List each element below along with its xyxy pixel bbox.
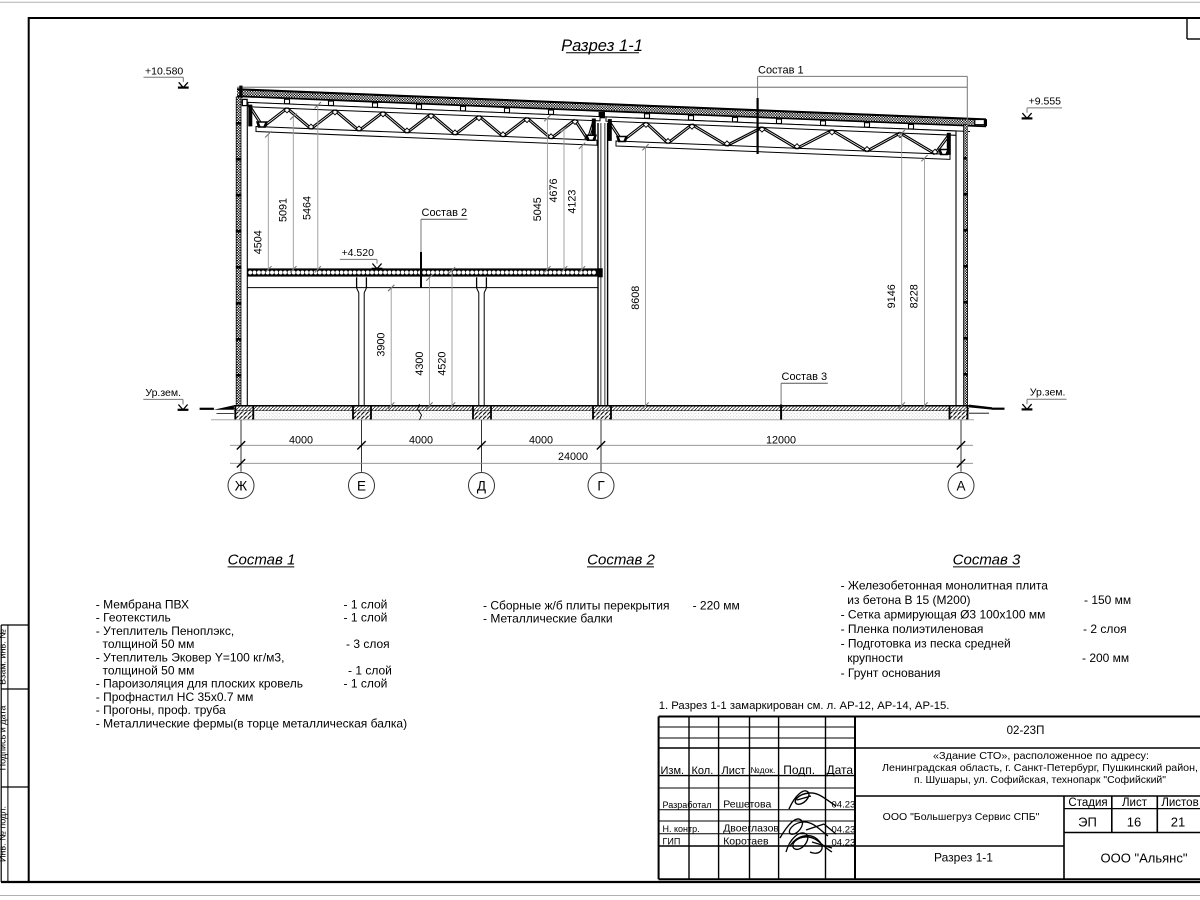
svg-text:- Пароизоляция для плоских кро: - Пароизоляция для плоских кровель: [96, 677, 303, 691]
svg-text:Инв. № подл.: Инв. № подл.: [0, 806, 7, 862]
svg-text:4300: 4300: [414, 352, 426, 376]
svg-text:ГИП: ГИП: [663, 837, 681, 847]
svg-text:+10.580: +10.580: [145, 66, 183, 78]
svg-text:- 220 мм: - 220 мм: [693, 599, 740, 613]
svg-text:- Утеплитель Эковер Y=100 кг/м: - Утеплитель Эковер Y=100 кг/м3,: [96, 650, 285, 664]
svg-text:п. Шушары, ул. Софийская, техн: п. Шушары, ул. Софийская, технопарк "Соф…: [914, 774, 1166, 786]
svg-text:Ур.зем.: Ур.зем.: [1030, 387, 1066, 399]
svg-text:Изм.: Изм.: [661, 765, 685, 777]
svg-text:«Здание СТО», расположенное по: «Здание СТО», расположенное по адресу:: [933, 750, 1149, 762]
svg-text:4000: 4000: [289, 435, 313, 447]
svg-text:12000: 12000: [766, 435, 796, 447]
svg-text:Ур.зем.: Ур.зем.: [145, 387, 181, 399]
svg-text:Д: Д: [477, 478, 486, 493]
svg-text:1. Разрез 1-1 замаркирован см.: 1. Разрез 1-1 замаркирован см. л. АР-12,…: [659, 700, 950, 712]
svg-text:- 3 слоя: - 3 слоя: [346, 637, 390, 651]
svg-text:- Пленка полиэтиленовая: - Пленка полиэтиленовая: [841, 622, 984, 636]
svg-text:ООО "Альянс": ООО "Альянс": [1101, 851, 1188, 866]
svg-text:№док.: №док.: [751, 765, 776, 775]
svg-text:5464: 5464: [301, 196, 313, 220]
svg-text:Двоеглазов: Двоеглазов: [723, 823, 779, 835]
svg-text:4504: 4504: [253, 230, 265, 254]
svg-text:4123: 4123: [566, 190, 578, 214]
svg-text:- Утеплитель Пеноплэкс,: - Утеплитель Пеноплэкс,: [96, 624, 234, 638]
svg-text:- Подготовка из песка средней: - Подготовка из песка средней: [841, 637, 1011, 651]
svg-text:Дата: Дата: [827, 763, 854, 777]
svg-text:- Металлические балки: - Металлические балки: [483, 612, 613, 626]
svg-text:16: 16: [1127, 815, 1141, 830]
svg-text:Кол.: Кол.: [692, 765, 714, 777]
svg-text:Состав 3: Состав 3: [782, 371, 828, 383]
svg-text:Состав 1: Состав 1: [228, 551, 296, 568]
svg-text:Коротаев: Коротаев: [723, 835, 769, 847]
svg-text:ЭП: ЭП: [1078, 815, 1097, 830]
svg-text:Листов: Листов: [1161, 797, 1198, 809]
svg-text:Ленинградская область, г. Санк: Ленинградская область, г. Санкт-Петербур…: [882, 762, 1198, 774]
svg-text:Решетова: Решетова: [723, 799, 771, 811]
svg-text:Подпись и дата: Подпись и дата: [0, 706, 7, 771]
svg-text:Е: Е: [357, 478, 366, 493]
svg-text:4000: 4000: [529, 435, 553, 447]
svg-text:Лист: Лист: [722, 765, 746, 777]
svg-text:Состав 3: Состав 3: [953, 551, 1021, 568]
svg-text:крупности: крупности: [841, 651, 903, 665]
svg-text:24000: 24000: [558, 451, 588, 463]
svg-text:- Прогоны, проф. труба: - Прогоны, проф. труба: [96, 703, 226, 717]
svg-text:4000: 4000: [409, 435, 433, 447]
svg-text:- Железобетонная монолитная п: - Железобетонная монолитная плита: [841, 579, 1049, 593]
svg-text:9146: 9146: [886, 284, 898, 308]
svg-text:21: 21: [1171, 815, 1185, 830]
svg-text:ООО "Большегруз Сервис СПБ": ООО "Большегруз Сервис СПБ": [883, 811, 1040, 823]
svg-text:4520: 4520: [436, 352, 448, 376]
svg-text:Состав 2: Состав 2: [587, 551, 655, 568]
svg-text:Г: Г: [597, 478, 605, 493]
svg-text:- 1 слой: - 1 слой: [348, 664, 392, 678]
svg-text:Н. контр.: Н. контр.: [663, 824, 700, 834]
svg-text:- 150 мм: - 150 мм: [1084, 593, 1131, 607]
svg-text:Стадия: Стадия: [1068, 797, 1107, 809]
svg-text:- 1 слой: - 1 слой: [344, 677, 388, 691]
svg-text:04.23: 04.23: [832, 837, 856, 848]
svg-text:Состав 1: Состав 1: [758, 65, 804, 77]
svg-text:Состав 2: Состав 2: [422, 207, 468, 219]
svg-text:толщиной 50 мм: толщиной 50 мм: [96, 664, 195, 678]
svg-text:толщиной 50 мм: толщиной 50 мм: [96, 637, 195, 651]
svg-text:3900: 3900: [376, 333, 388, 357]
svg-text:Ж: Ж: [235, 478, 248, 493]
svg-text:4676: 4676: [548, 178, 560, 202]
svg-text:02-23П: 02-23П: [1007, 725, 1045, 737]
svg-text:- 2 слоя: - 2 слоя: [1083, 622, 1127, 636]
svg-text:Разработал: Разработал: [663, 800, 712, 810]
svg-text:- Сборные ж/б плиты перекрытия: - Сборные ж/б плиты перекрытия: [483, 599, 669, 613]
svg-text:5045: 5045: [532, 197, 544, 221]
svg-text:А: А: [956, 478, 965, 493]
svg-text:+4.520: +4.520: [342, 247, 375, 259]
svg-text:- Мембрана ПВХ: - Мембрана ПВХ: [96, 598, 189, 612]
svg-text:8608: 8608: [630, 286, 642, 310]
svg-text:Подп.: Подп.: [783, 763, 815, 777]
svg-text:Взам. инв. №: Взам. инв. №: [0, 629, 7, 685]
svg-text:- Металлические фермы(в торце: - Металлические фермы(в торце металличес…: [96, 716, 407, 730]
svg-text:- Грунт основания: - Грунт основания: [841, 666, 941, 680]
svg-text:Разрез 1-1: Разрез 1-1: [934, 851, 993, 865]
svg-text:- Геотекстиль: - Геотекстиль: [96, 611, 171, 625]
svg-text:- Профнастил НС 35х0.7 мм: - Профнастил НС 35х0.7 мм: [96, 690, 254, 704]
svg-text:Лист: Лист: [1122, 797, 1148, 809]
svg-text:- 1 слой: - 1 слой: [344, 598, 388, 612]
svg-text:5091: 5091: [278, 198, 290, 222]
svg-text:- 200 мм: - 200 мм: [1082, 651, 1129, 665]
svg-text:- 1 слой: - 1 слой: [344, 611, 388, 625]
svg-text:из бетона В 15 (М200): из бетона В 15 (М200): [841, 593, 971, 607]
svg-text:+9.555: +9.555: [1029, 96, 1062, 108]
svg-text:- Сетка армирующая Ø3 100х100: - Сетка армирующая Ø3 100х100 мм: [841, 608, 1046, 622]
svg-text:8228: 8228: [909, 284, 921, 308]
